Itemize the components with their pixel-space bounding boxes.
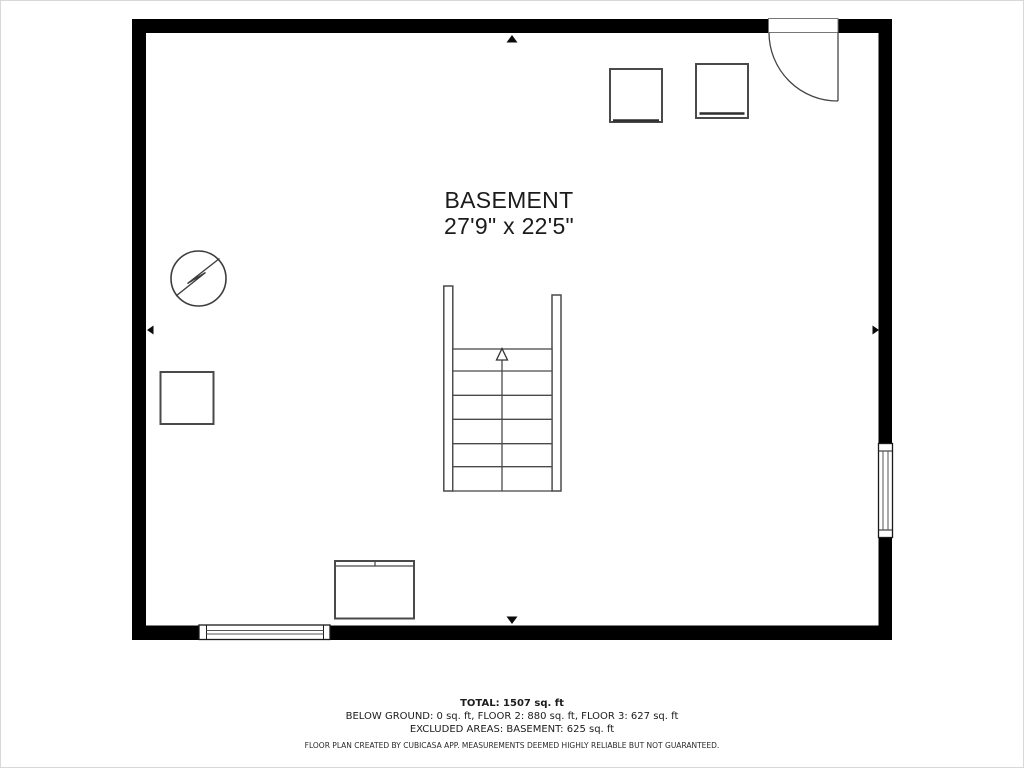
room-label: BASEMENT 27'9" x 22'5": [444, 187, 574, 239]
total-area-text: TOTAL: 1507 sq. ft: [1, 697, 1023, 710]
wall-marker-arrow-right-icon: [873, 326, 880, 335]
area-summary: TOTAL: 1507 sq. ft BELOW GROUND: 0 sq. f…: [1, 697, 1023, 750]
wall-marker-arrow-top-icon: [507, 35, 518, 43]
floor-plan-drawing: [1, 1, 1024, 768]
exterior-walls: [132, 19, 892, 640]
window-icon-bottom: [199, 625, 330, 640]
wall-marker-arrow-left-icon: [147, 326, 154, 335]
door-swing-icon: [769, 19, 839, 102]
staircase-icon: [444, 286, 561, 491]
floor-breakdown-text: BELOW GROUND: 0 sq. ft, FLOOR 2: 880 sq.…: [1, 710, 1023, 723]
floor-plan-page: BASEMENT 27'9" x 22'5" TOTAL: 1507 sq. f…: [0, 0, 1024, 768]
dresser-icon: [335, 561, 414, 619]
room-dimensions: 27'9" x 22'5": [444, 213, 574, 239]
storage-square-icon: [161, 372, 214, 424]
appliance-square-icon: [696, 64, 748, 118]
appliance-square-icon: [610, 69, 662, 122]
room-name: BASEMENT: [444, 187, 574, 213]
window-icon-right: [879, 444, 893, 538]
wall-marker-arrow-bottom-icon: [507, 617, 518, 625]
disclaimer-text: FLOOR PLAN CREATED BY CUBICASA APP. MEAS…: [1, 741, 1023, 750]
electrical-symbol-icon: [171, 251, 226, 306]
excluded-areas-text: EXCLUDED AREAS: BASEMENT: 625 sq. ft: [1, 723, 1023, 736]
